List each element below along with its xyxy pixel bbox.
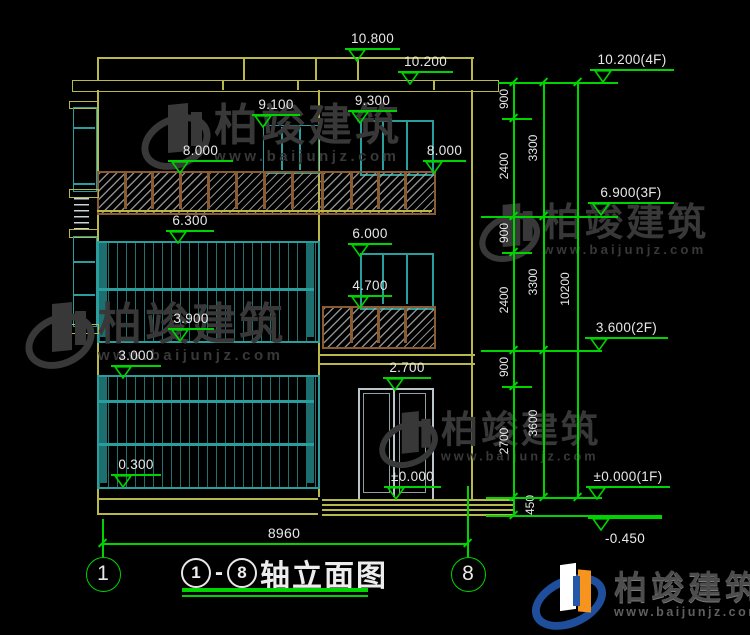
elevation-marker-triangle	[592, 203, 610, 216]
bottom-dimension-value: 8960	[244, 525, 324, 541]
dimension-value: 2400	[497, 136, 511, 196]
elevation-marker-triangle	[114, 366, 132, 379]
axis-bubble: 1	[86, 557, 121, 592]
elevation-marker-label: 0.300	[101, 457, 171, 472]
elevation-marker-triangle	[351, 296, 369, 309]
level-line	[502, 386, 532, 388]
dimension-value: 3300	[526, 252, 540, 312]
elevation-marker-triangle	[351, 111, 369, 124]
dimension-value: 900	[497, 337, 511, 397]
level-line	[498, 82, 618, 84]
dimension-value: 450	[523, 475, 537, 535]
level-line	[481, 350, 602, 352]
company-logo: 柏竣建筑 www.baijunjz.com	[528, 560, 750, 630]
level-line	[486, 515, 662, 517]
level-line	[502, 252, 532, 254]
dimension-value: 2400	[497, 270, 511, 330]
level-line	[486, 497, 602, 499]
elevation-marker-triangle	[401, 72, 419, 85]
elevation-marker-label: 10.800	[335, 31, 410, 46]
company-name: 柏竣建筑	[614, 571, 750, 606]
dimension-value: 3300	[526, 118, 540, 178]
dimension-value: 10200	[558, 259, 572, 319]
elevation-marker-label: 3.600(2F)	[575, 320, 678, 335]
dimension-chain-line	[543, 82, 545, 497]
elevation-marker-label: 3.900	[158, 311, 224, 326]
elevation-marker-triangle	[254, 115, 272, 128]
dimension-value: 2700	[497, 411, 511, 471]
title-axis-end: 8	[227, 558, 257, 588]
bottom-dimension-line	[102, 543, 467, 545]
elevation-marker-label: 8.000	[413, 143, 476, 158]
elevation-marker-label: 4.700	[338, 278, 402, 293]
cad-elevation-drawing: 柏竣建筑www.baijunjz.com柏竣建筑www.baijunjz.com…	[0, 0, 750, 635]
company-url: www.baijunjz.com	[614, 605, 750, 619]
elevation-marker-label: 8.000	[158, 143, 243, 158]
elevation-marker-label: ±0.000(1F)	[576, 469, 680, 484]
elevation-marker-label: 10.200	[388, 54, 463, 69]
elevation-marker-triangle	[171, 161, 189, 174]
elevation-marker-triangle	[592, 518, 610, 531]
elevation-marker-label: 9.300	[338, 93, 407, 108]
elevation-marker-label: -0.450	[578, 531, 672, 546]
elevation-marker-label: 2.700	[373, 360, 441, 375]
elevation-marker-triangle	[169, 231, 187, 244]
axis-extension	[102, 543, 104, 556]
dimension-value: 900	[497, 69, 511, 129]
title-underline	[182, 588, 368, 592]
title-axis-start: 1	[181, 558, 211, 588]
axis-extension	[467, 543, 469, 556]
title-underline-thin	[182, 595, 368, 597]
dimension-value: 3600	[526, 393, 540, 453]
elevation-marker-label: 6.900(3F)	[578, 185, 684, 200]
company-logo-icon	[528, 560, 614, 630]
dimension-chain-line	[513, 82, 515, 515]
level-line	[481, 216, 618, 218]
elevation-marker-label: ±0.000	[374, 469, 451, 484]
dimension-value: 900	[497, 203, 511, 263]
level-line	[502, 118, 532, 120]
dimension-chain-line	[577, 82, 579, 497]
elevation-marker-triangle	[114, 475, 132, 488]
elevation-marker-triangle	[425, 161, 443, 174]
elevation-marker-triangle	[387, 487, 405, 500]
elevation-marker-label: 10.200(4F)	[580, 52, 684, 67]
elevation-marker-triangle	[171, 329, 189, 342]
axis-bubble: 8	[451, 557, 486, 592]
elevation-marker-label: 6.300	[156, 213, 224, 228]
elevation-marker-triangle	[351, 244, 369, 257]
elevation-marker-label: 6.000	[338, 226, 402, 241]
elevation-marker-label: 9.100	[242, 97, 310, 112]
title-dash: -	[215, 559, 223, 587]
dimension-overlay: 10.80010.2009.1009.3008.0008.0006.3006.0…	[0, 0, 750, 635]
elevation-marker-triangle	[348, 49, 366, 62]
elevation-marker-triangle	[386, 378, 404, 391]
elevation-marker-label: 3.000	[101, 348, 171, 363]
